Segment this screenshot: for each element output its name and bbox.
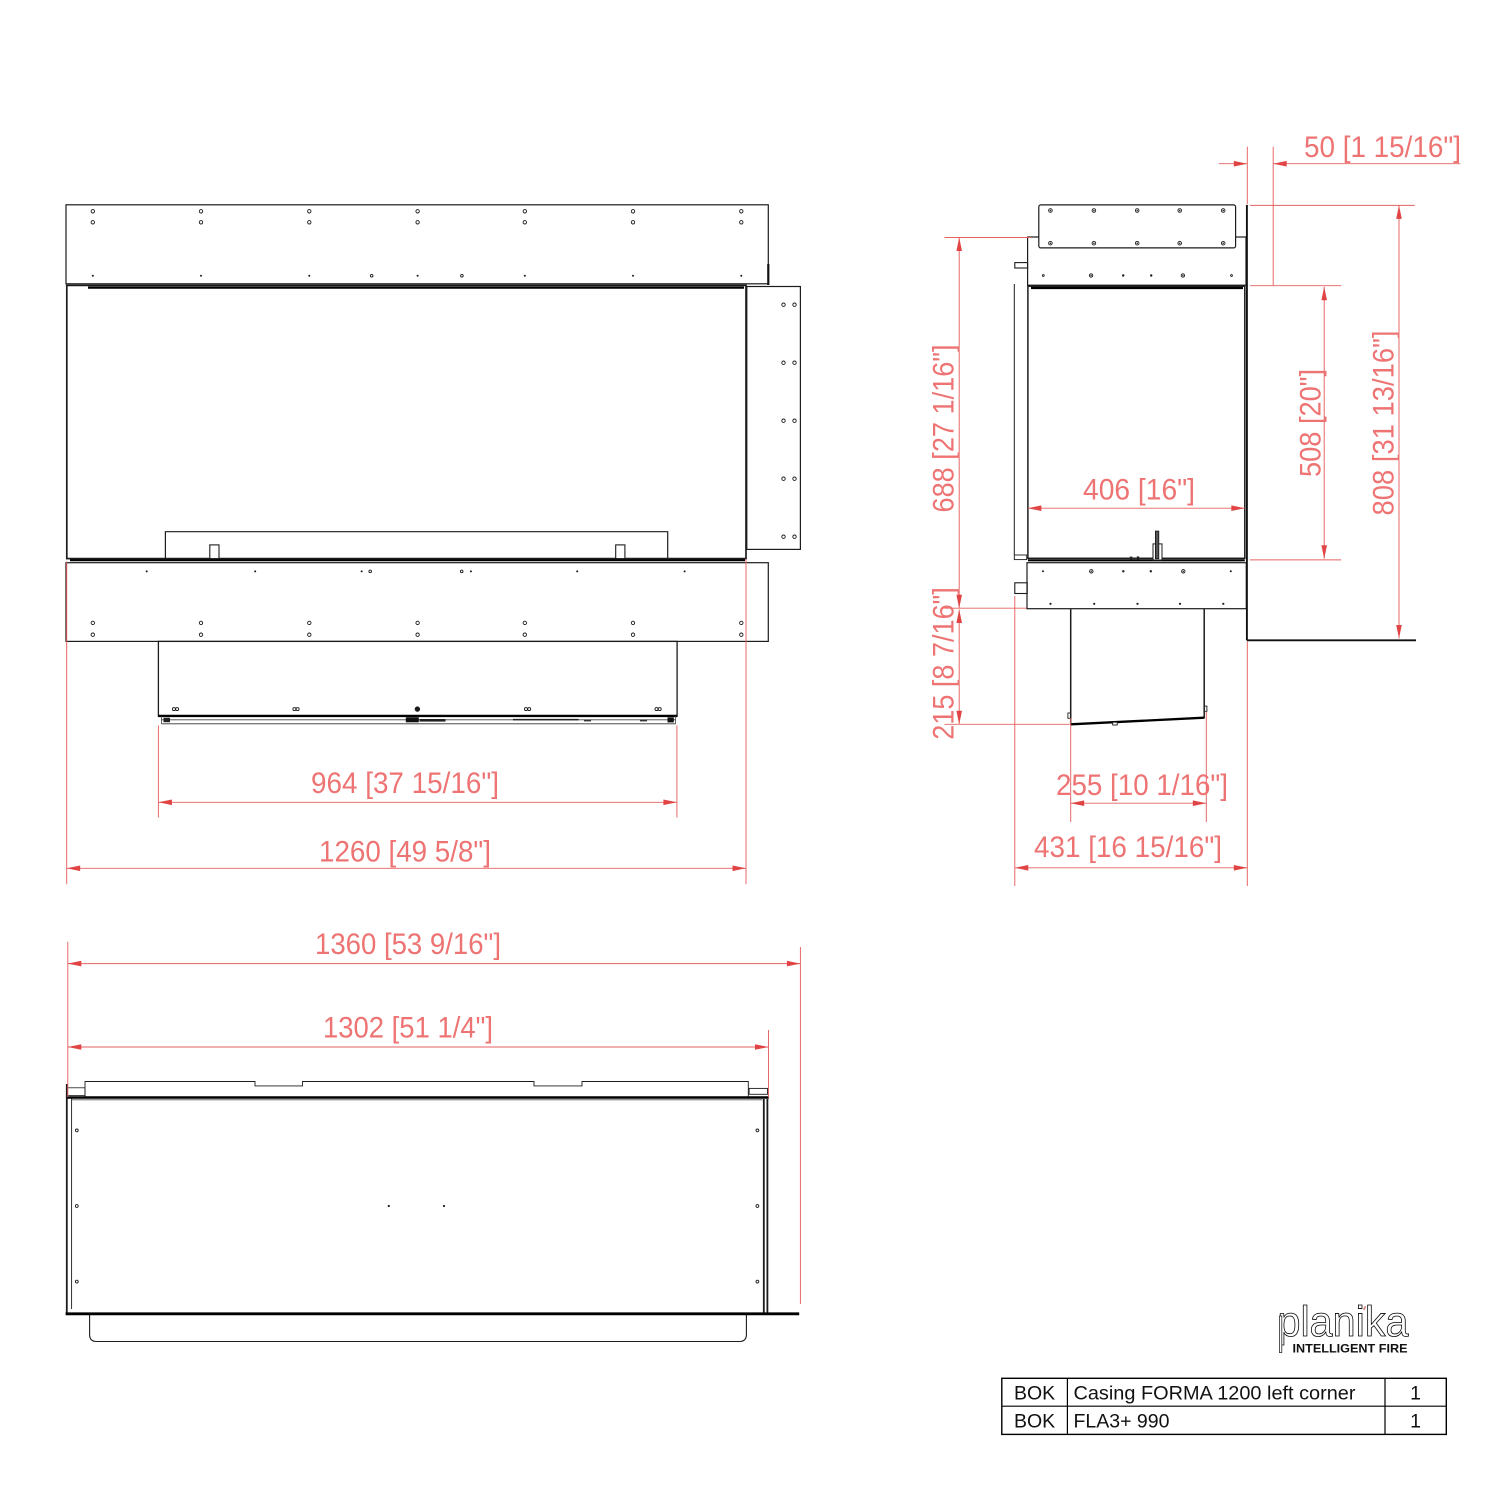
- svg-text:964 [37 15/16"]: 964 [37 15/16"]: [311, 767, 499, 800]
- svg-text:Casing FORMA 1200 left corner: Casing FORMA 1200 left corner: [1074, 1382, 1357, 1404]
- svg-text:INTELLIGENT FIRE: INTELLIGENT FIRE: [1293, 1342, 1408, 1355]
- svg-text:FLA3+ 990: FLA3+ 990: [1074, 1410, 1170, 1432]
- svg-text:BOK: BOK: [1014, 1410, 1055, 1432]
- svg-text:431 [16 15/16"]: 431 [16 15/16"]: [1034, 831, 1222, 864]
- svg-text:1: 1: [1410, 1382, 1421, 1404]
- svg-text:planika: planika: [1278, 1298, 1409, 1346]
- svg-text:215 [8 7/16"]: 215 [8 7/16"]: [928, 587, 961, 740]
- svg-text:508 [20"]: 508 [20"]: [1295, 369, 1328, 477]
- svg-text:1: 1: [1410, 1410, 1421, 1432]
- svg-text:BOK: BOK: [1014, 1382, 1055, 1404]
- svg-text:50 [1 15/16"]: 50 [1 15/16"]: [1304, 131, 1461, 164]
- svg-text:255 [10 1/16"]: 255 [10 1/16"]: [1056, 769, 1228, 802]
- svg-text:1302 [51 1/4"]: 1302 [51 1/4"]: [323, 1012, 493, 1045]
- svg-text:1260 [49 5/8"]: 1260 [49 5/8"]: [319, 835, 491, 868]
- svg-text:1360 [53 9/16"]: 1360 [53 9/16"]: [315, 928, 501, 961]
- svg-text:808 [31 13/16"]: 808 [31 13/16"]: [1368, 331, 1401, 516]
- svg-text:406 [16"]: 406 [16"]: [1083, 474, 1195, 507]
- svg-text:688 [27 1/16"]: 688 [27 1/16"]: [928, 345, 961, 513]
